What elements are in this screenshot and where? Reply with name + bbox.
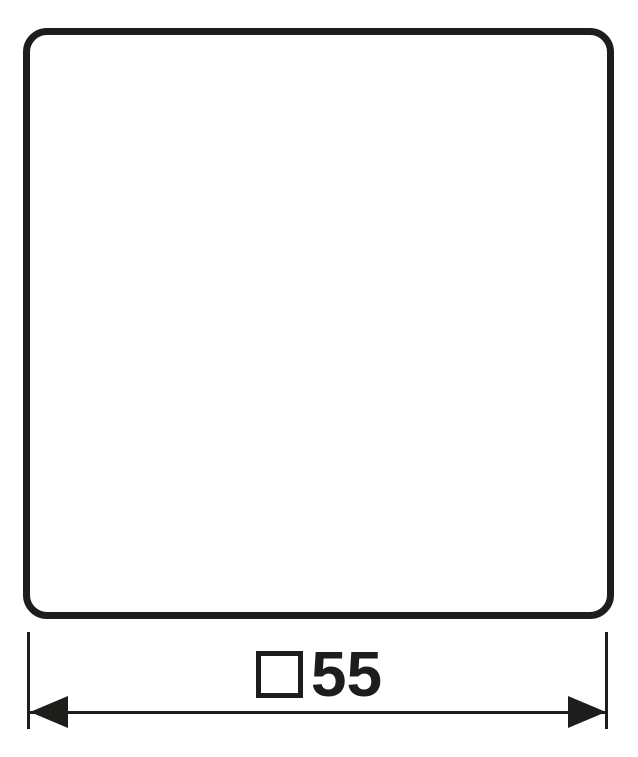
dimension-line xyxy=(30,711,606,714)
technical-drawing: 55 xyxy=(0,0,638,757)
square-symbol-icon xyxy=(256,651,303,698)
dimension-label: 55 xyxy=(0,651,638,698)
dimension-value: 55 xyxy=(311,651,382,698)
cover-plate-outline xyxy=(23,28,614,619)
arrow-left-icon xyxy=(30,696,68,728)
arrow-right-icon xyxy=(568,696,606,728)
